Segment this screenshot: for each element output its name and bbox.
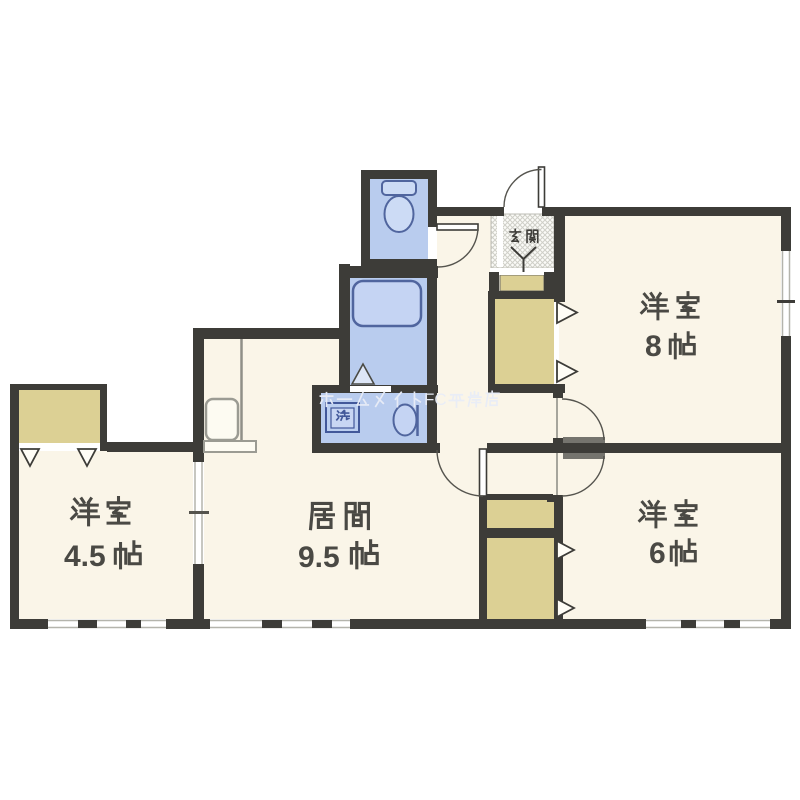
svg-text:FC: FC [424, 390, 447, 409]
svg-text:4.5: 4.5 [64, 540, 106, 573]
svg-text:6: 6 [649, 537, 666, 570]
svg-text:9.5: 9.5 [298, 541, 340, 574]
svg-text:8: 8 [645, 330, 662, 363]
